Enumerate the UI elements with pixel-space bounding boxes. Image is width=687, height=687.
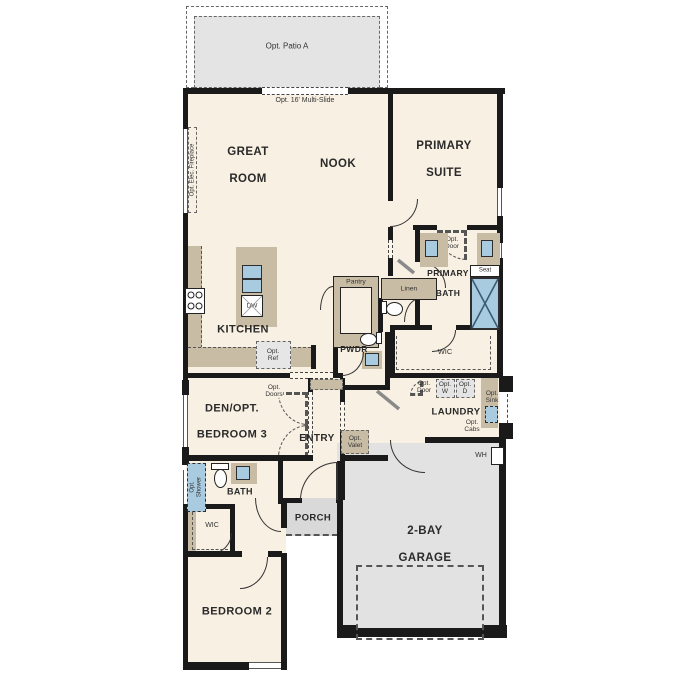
- window-den: [183, 395, 188, 447]
- kitchen-counter-end: [311, 345, 316, 369]
- bath2-label: BATH: [227, 487, 253, 498]
- wall-right: [497, 88, 503, 188]
- wall-den-south: [183, 455, 313, 461]
- wall-pantry-west: [333, 348, 338, 373]
- opt-shower-label: Opt. Shower: [189, 477, 202, 497]
- window-laundry-dashed: [507, 394, 508, 423]
- floor-plan: Opt. Patio A Opt. 16' Multi-Slide Opt. E…: [0, 0, 687, 687]
- den-line1: DEN/OPT.: [197, 403, 267, 416]
- range: [185, 288, 205, 314]
- opt-opening: [388, 240, 393, 258]
- primary-suite-line2: SUITE: [416, 167, 471, 181]
- wall-wic-north: [390, 325, 432, 330]
- water-heater: [491, 447, 504, 465]
- toilet-bowl-primary: [386, 302, 403, 316]
- front-door-leaf: [336, 462, 338, 500]
- bath2-sink: [236, 466, 250, 480]
- garage-line2: GARAGE: [399, 552, 452, 566]
- opt-cabs-label: Opt. Cabs: [464, 419, 479, 433]
- coat-closet: [310, 379, 343, 390]
- great-room-line1: GREAT: [227, 146, 268, 160]
- wall-post: [182, 380, 189, 395]
- wall-bedroom2-top: [268, 551, 282, 557]
- multi-slide-door: [262, 87, 348, 95]
- wall-suite-west: [388, 227, 393, 240]
- opt-ref-label: Opt. Ref: [267, 348, 279, 362]
- opt-sink: [485, 406, 498, 423]
- primary-bath-label: PRIMARY BATH: [427, 258, 469, 308]
- opt-doors-label: Opt. Doors: [264, 384, 283, 398]
- great-room-line2: ROOM: [227, 173, 268, 187]
- patio-area: [194, 16, 380, 88]
- porch-label: PORCH: [295, 512, 331, 523]
- entry-label: ENTRY: [299, 433, 335, 445]
- bath-sink-left: [425, 240, 438, 257]
- wall-wic2-east: [230, 504, 235, 556]
- opt-washer-label: Opt. W: [439, 381, 451, 395]
- kitchen-label: KITCHEN: [217, 324, 269, 337]
- dishwasher-label: DW: [247, 302, 258, 309]
- pantry-interior: [340, 287, 372, 334]
- wall-post: [499, 376, 513, 392]
- wall-suite-west: [388, 91, 393, 201]
- primary-bath-line1: PRIMARY: [427, 268, 469, 278]
- shower: [470, 277, 500, 330]
- nook-label: NOOK: [320, 158, 356, 172]
- pantry-label: Pantry: [346, 278, 366, 285]
- primary-bath-line2: BATH: [427, 288, 469, 298]
- wall-wic-west: [390, 330, 395, 375]
- opt-door-laundry-label: Opt. Door: [417, 380, 431, 394]
- wall-pwdr-east: [385, 332, 390, 390]
- multi-slide-label: Opt. 16' Multi-Slide: [276, 97, 335, 105]
- garage-line1: 2-BAY: [399, 525, 452, 539]
- linen-label: Linen: [401, 285, 418, 292]
- opt-valet-label: Opt. Valet: [348, 435, 362, 449]
- wall-bottom-bedroom2: [183, 662, 249, 670]
- wall-hall-south: [340, 455, 388, 461]
- window-suite-1: [497, 188, 502, 216]
- wall-bedroom2-right: [281, 553, 287, 670]
- primary-suite-label: PRIMARY SUITE: [416, 126, 471, 194]
- wall-suite-south: [467, 225, 500, 230]
- wall-suite-west: [388, 258, 393, 276]
- wic2-shelf-dash: [192, 512, 228, 550]
- opt-doors-opening: [308, 392, 313, 458]
- den-label: DEN/OPT. BEDROOM 3: [197, 390, 267, 455]
- island-sink-upper: [242, 265, 262, 279]
- wall-laundry-south: [425, 437, 503, 443]
- bath-sink-right: [481, 240, 493, 257]
- patio-label: Opt. Patio A: [266, 43, 309, 52]
- opt-dryer-label: Opt. D: [459, 381, 471, 395]
- wall-garage-right: [499, 439, 506, 638]
- bedroom2-label: BEDROOM 2: [202, 606, 272, 619]
- wall-south-west: [183, 373, 290, 378]
- kitchen-counter-bottom: [188, 347, 311, 367]
- wall-post: [482, 625, 507, 638]
- great-room-label: GREAT ROOM: [227, 132, 268, 200]
- opt-fireplace-label: Opt. Elec. Fireplace: [190, 144, 197, 197]
- entry-cased-opening: [340, 402, 345, 432]
- water-heater-label: WH: [475, 452, 487, 460]
- wall-bedroom2-top: [186, 551, 242, 557]
- wic-label: WIC: [438, 348, 453, 356]
- wall-left: [183, 88, 188, 129]
- wic2-label: WIC: [205, 522, 219, 530]
- seat-label: Seat: [479, 268, 491, 275]
- island-sink-lower: [242, 279, 262, 293]
- den-line2: BEDROOM 3: [197, 428, 267, 441]
- pwdr-sink: [365, 353, 379, 366]
- opt-sink-label: Opt. Sink: [486, 390, 499, 404]
- window-bedroom2: [249, 662, 285, 669]
- primary-suite-line1: PRIMARY: [416, 140, 471, 154]
- toilet-bowl-bath2: [214, 469, 227, 488]
- pwdr-label: PWDR: [340, 344, 368, 354]
- laundry-label: LAUNDRY: [432, 406, 481, 417]
- garage-door-dashed: [356, 565, 484, 640]
